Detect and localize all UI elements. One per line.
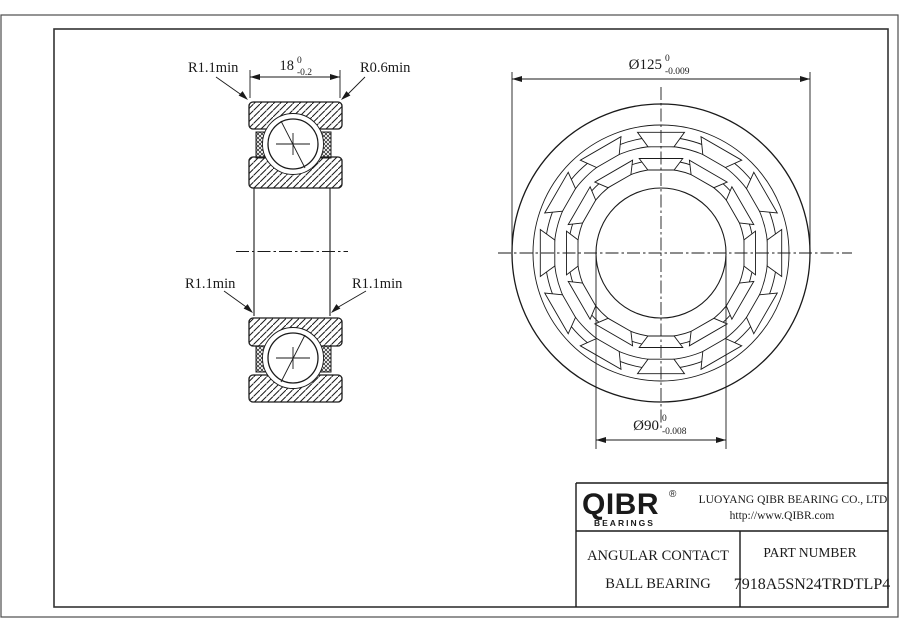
radius-label: R0.6min bbox=[360, 60, 411, 76]
logo-text: QIBR bbox=[582, 488, 659, 521]
radius-label: R1.1min bbox=[352, 276, 403, 292]
arrowhead bbox=[331, 304, 340, 313]
company-website: http://www.QIBR.com bbox=[730, 510, 835, 522]
bore-dim-upper-tol: 0 bbox=[662, 414, 667, 424]
cage-pocket bbox=[747, 172, 778, 213]
section-view: R1.1min R0.6min R1.1min R1.1min 18 0 -0.… bbox=[185, 56, 411, 402]
od-dim-value: Ø125 bbox=[629, 57, 662, 73]
cage-pocket bbox=[701, 339, 742, 370]
arrowhead bbox=[512, 76, 522, 82]
od-dim-upper-tol: 0 bbox=[665, 54, 670, 64]
bore-dim-lower-tol: -0.008 bbox=[662, 427, 687, 437]
logo-subtext: BEARINGS bbox=[594, 518, 655, 528]
front-view: Ø125 0 -0.009 Ø90 0 -0.008 bbox=[498, 54, 852, 449]
arrowhead bbox=[800, 76, 810, 82]
part-number-label: PART NUMBER bbox=[763, 545, 856, 560]
bore-dim-value: Ø90 bbox=[633, 418, 659, 434]
lower-half-section bbox=[249, 318, 342, 402]
arrowhead bbox=[716, 437, 726, 443]
cage-pocket bbox=[580, 339, 621, 370]
drawing-sheet: R1.1min R0.6min R1.1min R1.1min 18 0 -0.… bbox=[0, 0, 900, 636]
width-dim-upper-tol: 0 bbox=[297, 56, 302, 66]
upper-half-section bbox=[249, 102, 342, 188]
bearing-drawing-canvas: R1.1min R0.6min R1.1min R1.1min 18 0 -0.… bbox=[0, 0, 900, 636]
leader-line bbox=[216, 77, 243, 96]
arrowhead bbox=[239, 91, 248, 100]
radius-label: R1.1min bbox=[185, 276, 236, 292]
product-type-line1: ANGULAR CONTACT bbox=[587, 548, 729, 564]
od-dim-lower-tol: -0.009 bbox=[665, 67, 690, 77]
arrowhead bbox=[250, 74, 260, 80]
arrowhead bbox=[330, 74, 340, 80]
leader-line bbox=[346, 77, 365, 96]
leader-line bbox=[335, 291, 366, 309]
leader-line bbox=[224, 291, 249, 309]
cage-pocket bbox=[580, 137, 621, 168]
width-dim-lower-tol: -0.2 bbox=[297, 68, 312, 78]
width-dim-value: 18 bbox=[280, 58, 295, 74]
part-number-value: 7918A5SN24TRDTLP4 bbox=[734, 576, 890, 593]
cage-pocket bbox=[545, 172, 576, 213]
arrowhead bbox=[244, 304, 253, 313]
product-type-line2: BALL BEARING bbox=[605, 576, 711, 592]
company-name: LUOYANG QIBR BEARING CO., LTD bbox=[699, 494, 888, 506]
cage-pocket bbox=[747, 293, 778, 334]
arrowhead bbox=[596, 437, 606, 443]
cage-pocket bbox=[701, 137, 742, 168]
radius-label: R1.1min bbox=[188, 60, 239, 76]
title-block: QIBR ® BEARINGS LUOYANG QIBR BEARING CO.… bbox=[576, 483, 890, 607]
cage-pocket bbox=[545, 293, 576, 334]
registered-trademark-icon: ® bbox=[669, 489, 677, 500]
